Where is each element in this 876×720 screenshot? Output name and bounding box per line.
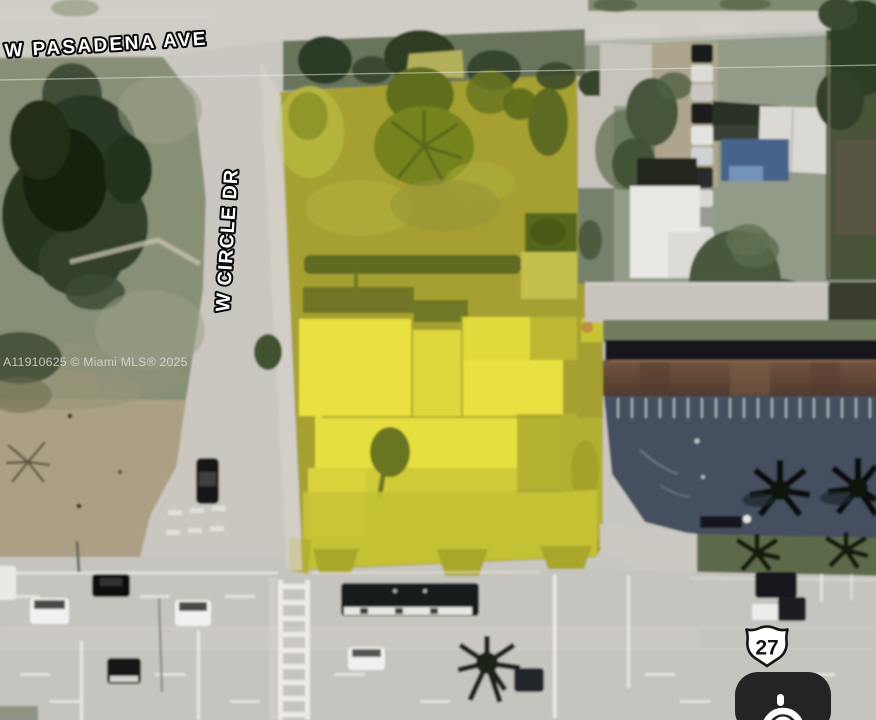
svg-text:A11910625 © Miami MLS® 2025: A11910625 © Miami MLS® 2025	[3, 355, 188, 369]
svg-text:27: 27	[755, 637, 778, 660]
